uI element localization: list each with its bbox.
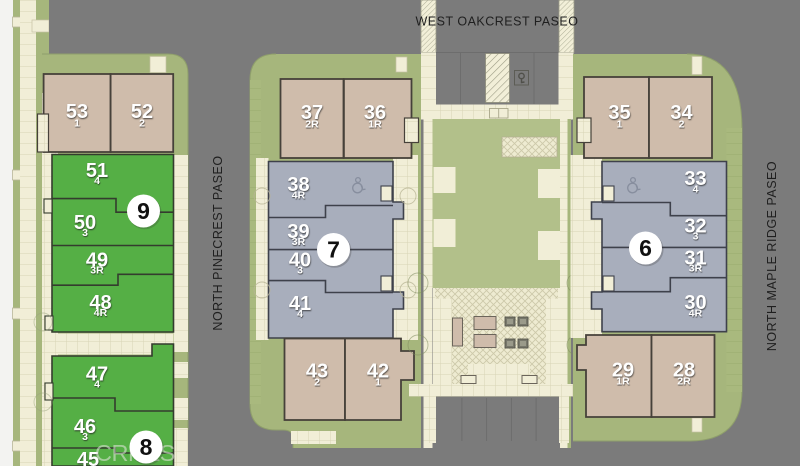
svg-text:3R: 3R xyxy=(90,265,104,277)
svg-text:NORTH PINECREST PASEO: NORTH PINECREST PASEO xyxy=(211,155,225,330)
svg-text:8: 8 xyxy=(140,434,153,460)
svg-text:1: 1 xyxy=(375,377,381,389)
svg-text:1: 1 xyxy=(74,118,80,130)
svg-text:4: 4 xyxy=(94,175,100,187)
svg-text:9: 9 xyxy=(137,198,150,224)
svg-text:2R: 2R xyxy=(305,119,319,131)
svg-text:3R: 3R xyxy=(292,236,306,248)
svg-text:1R: 1R xyxy=(616,376,630,388)
svg-text:1: 1 xyxy=(617,119,623,131)
svg-text:NORTH MAPLE RIDGE PASEO: NORTH MAPLE RIDGE PASEO xyxy=(765,161,779,351)
svg-text:1R: 1R xyxy=(368,119,382,131)
svg-text:4R: 4R xyxy=(94,307,108,319)
svg-text:2: 2 xyxy=(314,377,320,389)
svg-text:3: 3 xyxy=(82,431,88,443)
svg-text:4: 4 xyxy=(94,379,100,391)
svg-text:2: 2 xyxy=(139,118,145,130)
svg-text:WEST OAKCREST PASEO: WEST OAKCREST PASEO xyxy=(415,15,578,29)
svg-text:2R: 2R xyxy=(677,376,691,388)
svg-text:3: 3 xyxy=(297,265,303,277)
svg-text:6: 6 xyxy=(639,235,652,261)
svg-text:4R: 4R xyxy=(292,190,306,202)
svg-text:4R: 4R xyxy=(689,308,703,320)
svg-text:2: 2 xyxy=(679,119,685,131)
svg-text:3: 3 xyxy=(693,231,699,243)
svg-text:4: 4 xyxy=(693,184,699,196)
svg-text:7: 7 xyxy=(327,237,340,263)
svg-text:3: 3 xyxy=(82,227,88,239)
svg-text:3R: 3R xyxy=(689,263,703,275)
svg-text:4: 4 xyxy=(297,308,303,320)
